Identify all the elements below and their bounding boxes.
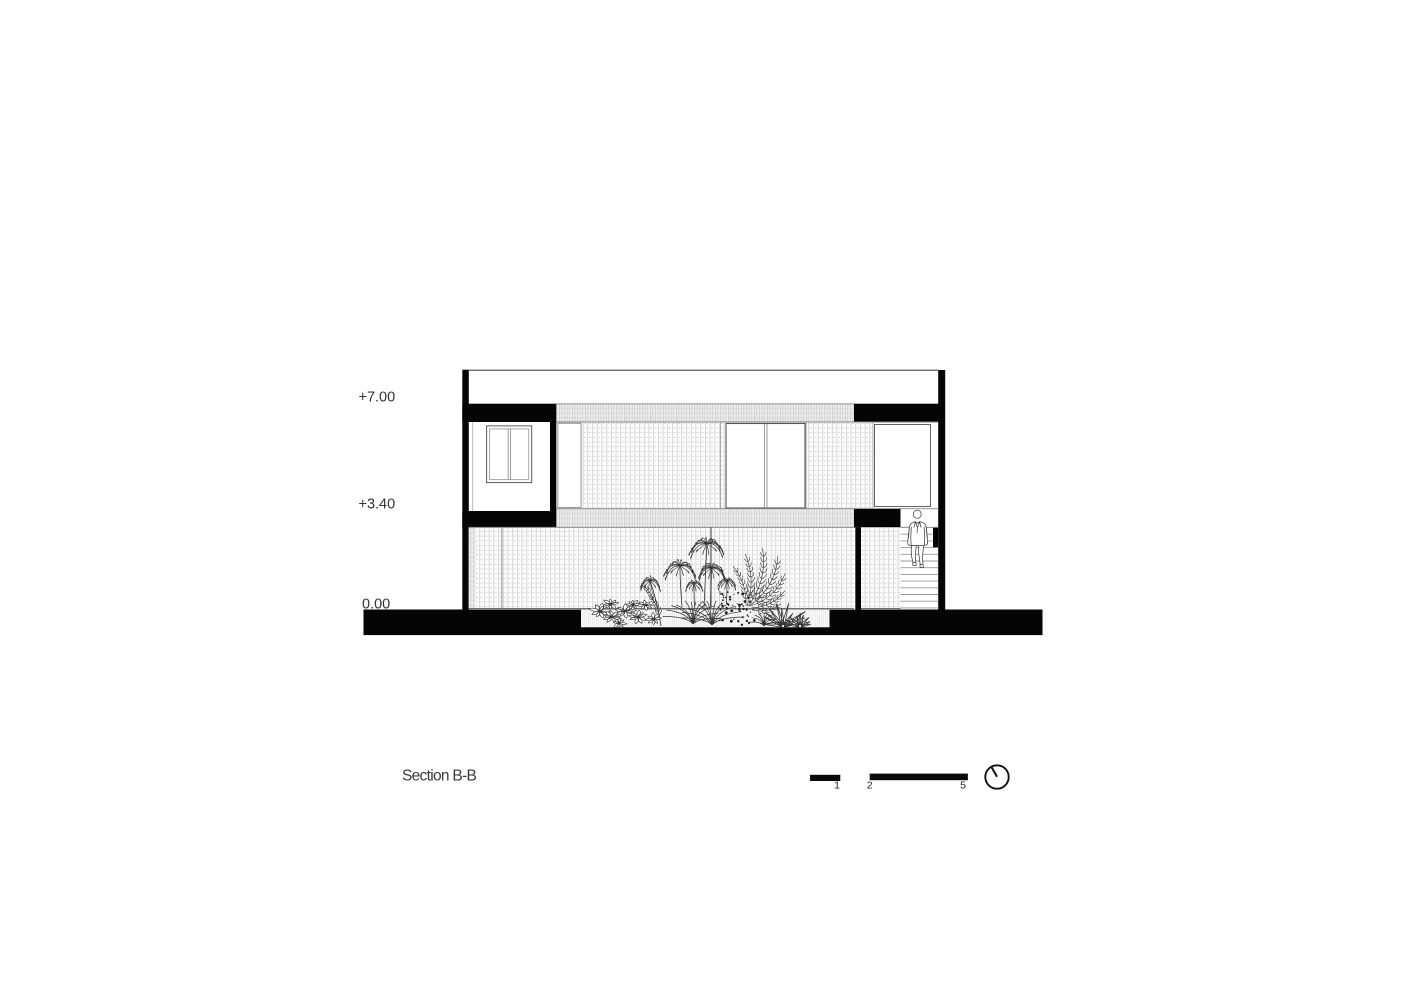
- svg-text:+3.40: +3.40: [359, 497, 396, 513]
- svg-text:0.00: 0.00: [362, 596, 390, 612]
- svg-text:1: 1: [834, 780, 840, 792]
- svg-text:+7.00: +7.00: [359, 390, 396, 406]
- svg-text:5: 5: [960, 780, 966, 792]
- svg-text:Section B-B: Section B-B: [402, 768, 477, 785]
- svg-text:2: 2: [867, 780, 873, 792]
